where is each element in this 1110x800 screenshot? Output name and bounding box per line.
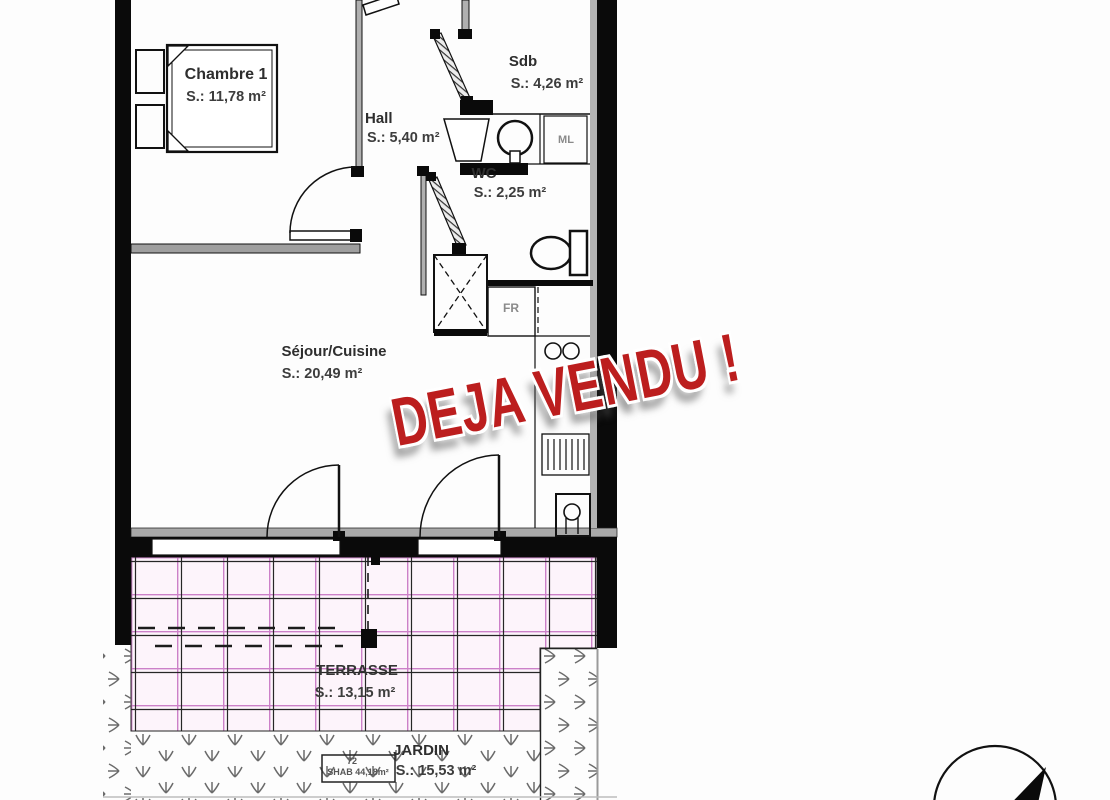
room-label-chambre: Chambre 1 (185, 67, 268, 83)
french-door-2-swing (420, 455, 499, 537)
toilet-tank (570, 231, 587, 275)
toilet-bowl (531, 237, 571, 269)
window-living-2 (418, 539, 501, 555)
room-area-sdb: S.: 4,26 m² (511, 77, 584, 92)
wall-chambre-bottom (131, 244, 360, 253)
door-wc-leaf (429, 177, 466, 248)
window-living-1 (152, 539, 340, 555)
drainer-ribs (548, 439, 584, 470)
doors (267, 0, 499, 537)
fridge-label: FR (503, 302, 519, 314)
door-chambre-leaf (290, 231, 356, 240)
kitchen-tap (564, 504, 580, 520)
grass-strip-left (103, 645, 131, 800)
door-entrance-leaf (363, 0, 399, 15)
lot-number: 72 (347, 757, 357, 766)
room-area-sejour: S.: 20,49 m² (282, 367, 363, 382)
wall-wc-bottom (487, 280, 593, 286)
door-chambre-swing (290, 167, 356, 233)
room-area-jardin: S.: 15,53 m² (396, 764, 477, 779)
nightstand-1 (136, 50, 164, 93)
wall-tick (371, 556, 380, 565)
wall-hall-chambre (356, 0, 362, 168)
room-area-wc: S.: 2,25 m² (474, 186, 547, 201)
garden-area (131, 731, 540, 800)
room-label-hall: Hall (365, 111, 393, 126)
wall-entry-stub (462, 0, 469, 30)
wall-left (115, 0, 131, 645)
door-sdb-leaf (433, 33, 470, 101)
wall-bottom-inner (131, 528, 617, 537)
room-area-terrasse: S.: 13,15 m² (315, 686, 396, 701)
north-arrow-icon (934, 746, 1056, 800)
french-door-1-swing (267, 465, 339, 537)
room-label-sdb: Sdb (509, 54, 537, 69)
washer-label: ML (558, 135, 574, 146)
room-label-wc: WC (472, 166, 497, 181)
floor-plan-page: Chambre 1 S.: 11,78 m² Hall S.: 5,40 m² … (0, 0, 1110, 800)
room-label-sejour: Séjour/Cuisine (281, 344, 386, 359)
nightstand-2 (136, 105, 164, 148)
lot-shab: SHAB 44,18m² (327, 768, 389, 777)
room-area-hall: S.: 5,40 m² (367, 131, 440, 146)
closet-cross (434, 255, 487, 332)
wall-right-liner (590, 0, 597, 528)
post-marker (361, 629, 377, 648)
grass-strip-right (541, 649, 597, 800)
sink-tap (510, 151, 520, 163)
bathroom-sink (498, 121, 532, 155)
furniture (136, 45, 590, 536)
room-label-jardin: JARDIN (393, 743, 449, 758)
door-panel (444, 119, 489, 161)
room-label-terrasse: TERRASSE (316, 663, 398, 678)
terrace-tiling (131, 556, 597, 731)
wall-hall-wc (421, 170, 426, 295)
room-area-chambre: S.: 11,78 m² (186, 90, 266, 105)
